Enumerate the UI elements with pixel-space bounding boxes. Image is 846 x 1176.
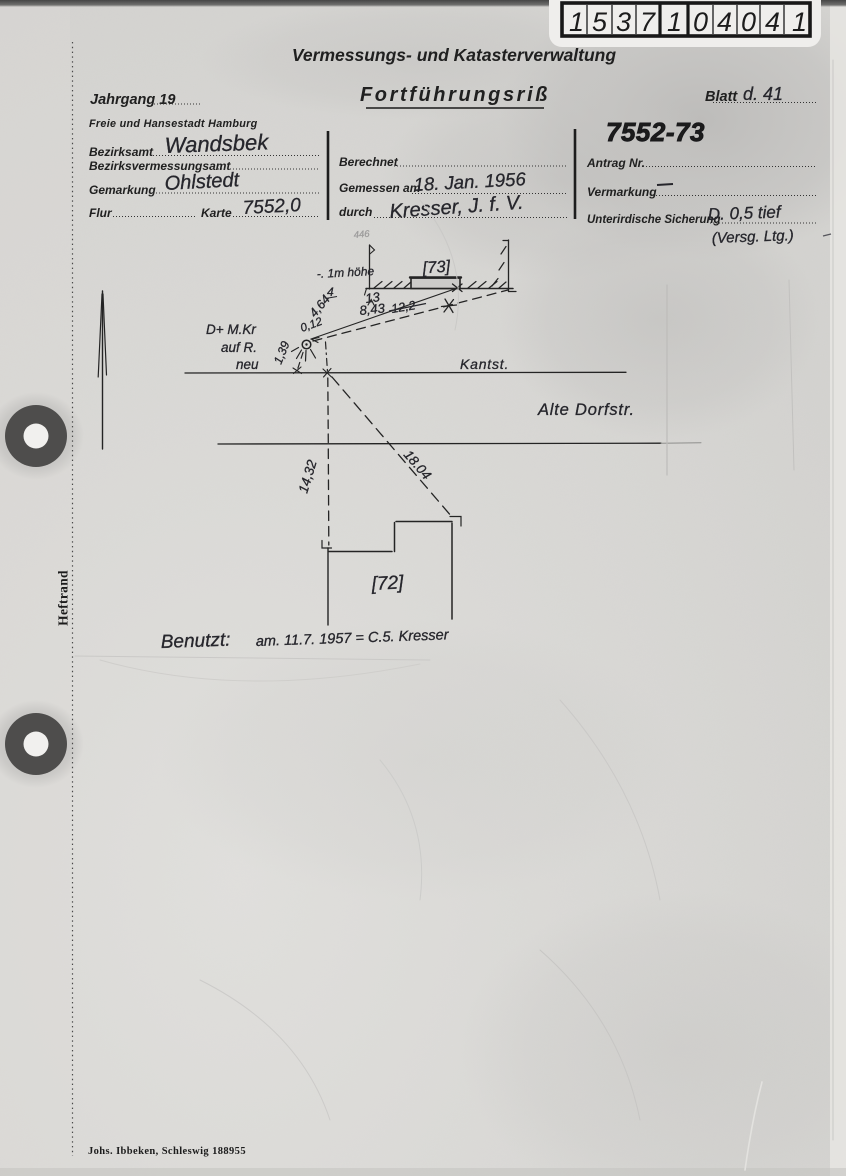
svg-text:7: 7 <box>640 7 656 37</box>
svg-text:Kantst.: Kantst. <box>460 356 509 372</box>
svg-text:Heftrand: Heftrand <box>56 570 71 626</box>
svg-text:neu: neu <box>236 357 259 372</box>
svg-text:1: 1 <box>569 7 584 37</box>
svg-text:5: 5 <box>592 7 608 37</box>
svg-text:Johs. Ibbeken, Schleswig 1889: Johs. Ibbeken, Schleswig 188955 <box>88 1146 246 1157</box>
svg-text:Flur: Flur <box>89 206 113 220</box>
svg-text:D. 0,5 tief: D. 0,5 tief <box>707 202 783 224</box>
svg-text:Antrag Nr.: Antrag Nr. <box>586 156 645 170</box>
svg-text:4: 4 <box>765 7 780 37</box>
svg-text:0: 0 <box>741 7 756 37</box>
svg-text:8,43: 8,43 <box>359 300 386 318</box>
svg-text:Ohlstedt: Ohlstedt <box>164 169 241 195</box>
svg-text:Gemessen am: Gemessen am <box>339 181 421 195</box>
svg-text:3: 3 <box>616 7 631 37</box>
svg-text:Jahrgang 19: Jahrgang 19 <box>90 92 175 108</box>
svg-text:Berechnet: Berechnet <box>339 155 399 169</box>
svg-text:[73]: [73] <box>421 258 451 278</box>
svg-text:Blatt: Blatt <box>705 89 738 105</box>
svg-text:[72]: [72] <box>370 572 404 595</box>
svg-text:Fortführungsriß: Fortführungsriß <box>360 84 550 106</box>
svg-text:Vermessungs- und Katasterver: Vermessungs- und Katasterverwaltung <box>292 45 616 65</box>
svg-text:D+ M.Kr: D+ M.Kr <box>206 322 256 337</box>
svg-text:7552-73: 7552-73 <box>606 117 705 147</box>
svg-text:Freie und Hansestadt Hamburg: Freie und Hansestadt Hamburg <box>89 118 258 130</box>
svg-text:7552,0: 7552,0 <box>242 195 302 219</box>
svg-text:4: 4 <box>717 7 732 37</box>
svg-text:durch: durch <box>339 205 372 219</box>
svg-text:Benutzt:: Benutzt: <box>160 630 230 653</box>
svg-text:446: 446 <box>353 229 370 241</box>
svg-text:0: 0 <box>693 7 708 37</box>
svg-text:Vermarkung: Vermarkung <box>587 185 657 199</box>
svg-text:Wandsbek: Wandsbek <box>164 129 269 158</box>
svg-text:Karte: Karte <box>201 206 232 220</box>
svg-text:1: 1 <box>792 7 807 37</box>
svg-text:d. 41: d. 41 <box>743 84 783 104</box>
svg-text:1: 1 <box>667 7 682 37</box>
svg-text:Gemarkung: Gemarkung <box>89 183 156 197</box>
svg-text:(Versg. Ltg.): (Versg. Ltg.) <box>712 227 795 247</box>
svg-text:auf R.: auf R. <box>221 340 257 355</box>
svg-text:Alte Dorfstr.: Alte Dorfstr. <box>537 401 635 419</box>
svg-text:Unterirdische Sicherung: Unterirdische Sicherung <box>587 214 721 226</box>
svg-text:Bezirksamt: Bezirksamt <box>89 145 154 159</box>
